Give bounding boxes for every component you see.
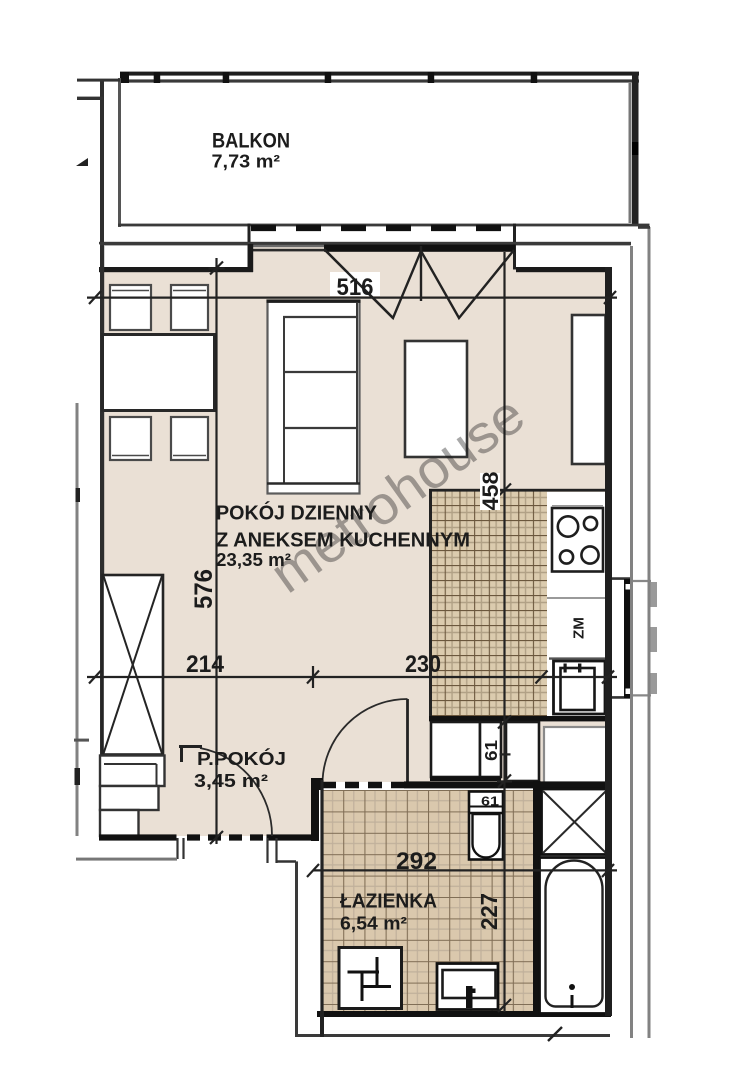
svg-text:6,54 m²: 6,54 m² [340, 914, 407, 934]
svg-text:458: 458 [478, 472, 503, 511]
svg-text:61: 61 [481, 740, 501, 761]
svg-text:BALKON: BALKON [212, 129, 290, 153]
svg-text:3,45 m²: 3,45 m² [194, 771, 268, 791]
svg-text:61: 61 [481, 795, 499, 809]
svg-text:292: 292 [396, 848, 437, 875]
svg-text:P.POKÓJ: P.POKÓJ [197, 748, 286, 769]
svg-text:516: 516 [337, 274, 374, 301]
svg-text:576: 576 [190, 569, 218, 609]
svg-text:7,73 m²: 7,73 m² [212, 152, 281, 172]
svg-text:214: 214 [186, 651, 225, 678]
svg-text:230: 230 [405, 651, 441, 678]
svg-text:ZM: ZM [571, 617, 588, 639]
svg-text:ŁAZIENKA: ŁAZIENKA [340, 891, 437, 913]
svg-text:227: 227 [476, 893, 502, 930]
